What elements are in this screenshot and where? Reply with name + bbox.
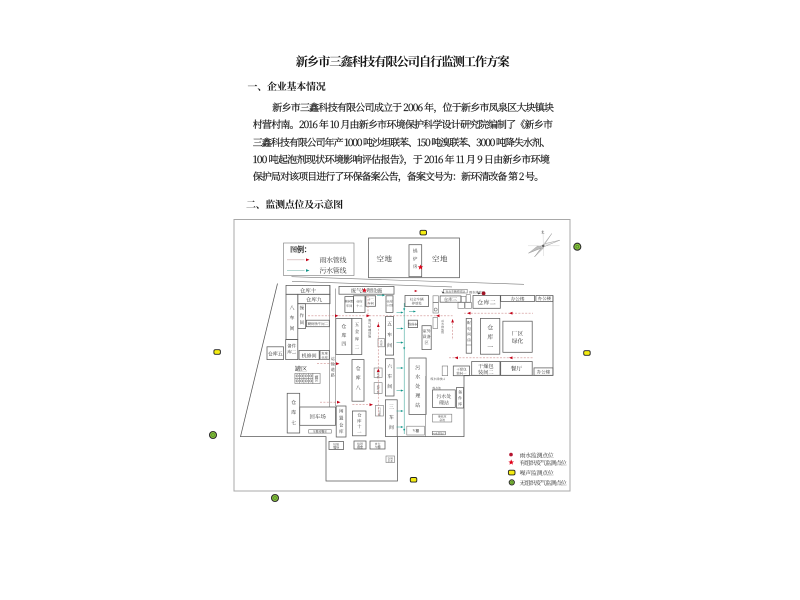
svg-text:噪声监测点位: 噪声监测点位 bbox=[520, 468, 554, 477]
svg-text:操作间: 操作间 bbox=[299, 306, 305, 327]
svg-text:废气处理设施: 废气处理设施 bbox=[351, 287, 383, 295]
svg-text:雨水排放管: 雨水排放管 bbox=[441, 319, 445, 335]
svg-text:有组织废气监测点位: 有组织废气监测点位 bbox=[520, 458, 567, 467]
svg-text:图例：: 图例： bbox=[290, 245, 311, 255]
svg-text:车棚: 车棚 bbox=[375, 444, 381, 449]
svg-text:停放处: 停放处 bbox=[412, 301, 423, 306]
svg-text:仓库四: 仓库四 bbox=[340, 323, 347, 350]
svg-text:锅炉房: 锅炉房 bbox=[412, 249, 418, 272]
svg-text:车间: 车间 bbox=[346, 303, 352, 308]
svg-text:罐区: 罐区 bbox=[295, 364, 307, 373]
svg-text:仓库: 仓库 bbox=[379, 340, 383, 347]
svg-text:罐区: 罐区 bbox=[314, 375, 319, 383]
svg-text:十三: 十三 bbox=[356, 303, 363, 308]
svg-text:危险废物库: 危险废物库 bbox=[313, 430, 327, 434]
svg-text:理站: 理站 bbox=[439, 399, 449, 406]
svg-text:污水管线: 污水管线 bbox=[320, 266, 347, 276]
svg-text:配电间房: 配电间房 bbox=[466, 320, 471, 343]
svg-text:仓库二: 仓库二 bbox=[477, 297, 496, 306]
svg-text:雨水管线: 雨水管线 bbox=[320, 255, 347, 265]
svg-text:值班室: 值班室 bbox=[376, 384, 380, 394]
svg-text:水井: 水井 bbox=[388, 459, 394, 463]
svg-text:三车间: 三车间 bbox=[388, 404, 395, 434]
svg-text:餐厅: 餐厅 bbox=[511, 364, 523, 373]
svg-text:十四: 十四 bbox=[386, 303, 392, 308]
svg-text:急池: 急池 bbox=[439, 418, 445, 422]
svg-text:仓库五: 仓库五 bbox=[268, 351, 283, 358]
svg-text:绿化: 绿化 bbox=[512, 336, 524, 345]
svg-text:车间: 车间 bbox=[368, 300, 374, 305]
svg-text:宿舍: 宿舍 bbox=[357, 444, 363, 449]
svg-text:装间一: 装间一 bbox=[456, 370, 467, 375]
svg-text:糊树脂车间二: 糊树脂车间二 bbox=[308, 321, 329, 326]
svg-text:车棚: 车棚 bbox=[412, 428, 419, 433]
svg-text:区: 区 bbox=[424, 340, 428, 346]
svg-text:五车间: 五车间 bbox=[386, 321, 393, 353]
svg-text:社会车辆停放处: 社会车辆停放处 bbox=[446, 289, 466, 293]
svg-text:空地: 空地 bbox=[377, 254, 393, 265]
svg-text:仓库: 仓库 bbox=[321, 354, 328, 359]
svg-text:仓库九: 仓库九 bbox=[306, 295, 323, 303]
svg-text:仓库七: 仓库七 bbox=[290, 399, 297, 429]
svg-text:备件库: 备件库 bbox=[457, 390, 463, 408]
svg-text:无组织废气监测点位: 无组织废气监测点位 bbox=[520, 478, 567, 487]
svg-text:机修间: 机修间 bbox=[302, 353, 317, 360]
svg-text:五金库二: 五金库二 bbox=[354, 322, 360, 352]
svg-text:库二: 库二 bbox=[287, 350, 297, 356]
svg-text:八车间: 八车间 bbox=[289, 304, 296, 336]
svg-text:污水处理站: 污水处理站 bbox=[414, 364, 421, 411]
svg-text:仓库一: 仓库一 bbox=[486, 323, 495, 353]
svg-text:北: 北 bbox=[541, 231, 545, 236]
svg-text:办公楼: 办公楼 bbox=[538, 296, 552, 302]
svg-text:回车场: 回车场 bbox=[309, 413, 326, 421]
svg-text:维修间: 维修间 bbox=[408, 321, 419, 326]
svg-text:仓库十一: 仓库十一 bbox=[356, 413, 362, 435]
svg-text:空地: 空地 bbox=[432, 254, 448, 265]
svg-text:办公楼: 办公楼 bbox=[511, 296, 525, 302]
svg-text:废气处理设施: 废气处理设施 bbox=[367, 319, 372, 339]
svg-text:废水排放口: 废水排放口 bbox=[430, 377, 445, 381]
svg-text:六车间: 六车间 bbox=[386, 363, 393, 393]
svg-text:仓库三: 仓库三 bbox=[444, 297, 458, 303]
svg-text:运输道路: 运输道路 bbox=[330, 356, 336, 378]
svg-text:仓库十: 仓库十 bbox=[300, 286, 317, 294]
svg-text:污水排放口: 污水排放口 bbox=[432, 431, 446, 435]
svg-text:办公楼: 办公楼 bbox=[537, 369, 551, 375]
svg-text:闲置仓库: 闲置仓库 bbox=[338, 409, 344, 436]
svg-text:装间二: 装间二 bbox=[478, 369, 494, 376]
svg-text:仓库八: 仓库八 bbox=[355, 365, 362, 394]
svg-text:堆场: 堆场 bbox=[333, 445, 339, 450]
